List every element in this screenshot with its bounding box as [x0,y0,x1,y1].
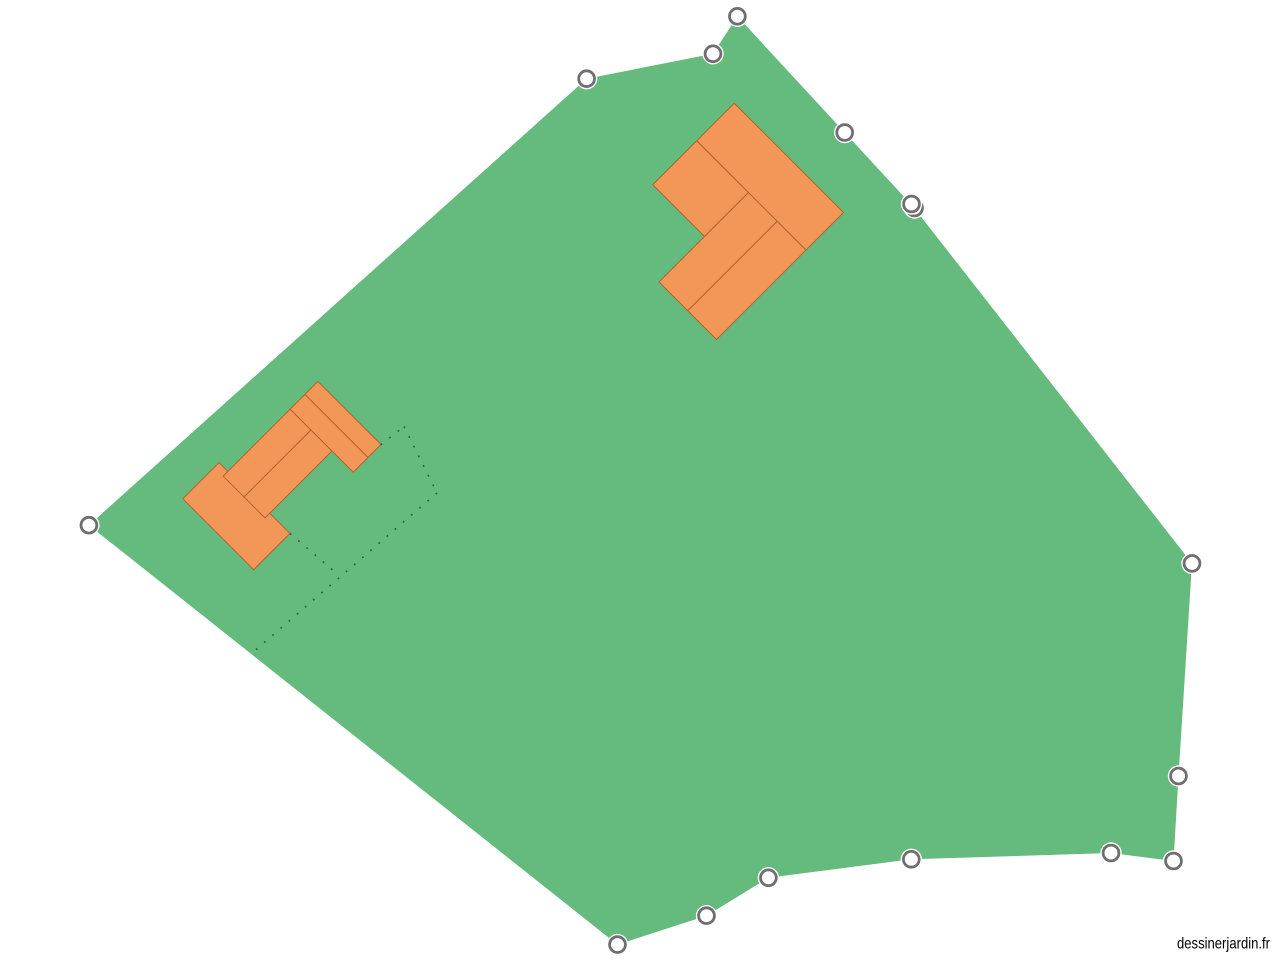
svg-text:dessinerjardin.fr: dessinerjardin.fr [1177,935,1271,952]
